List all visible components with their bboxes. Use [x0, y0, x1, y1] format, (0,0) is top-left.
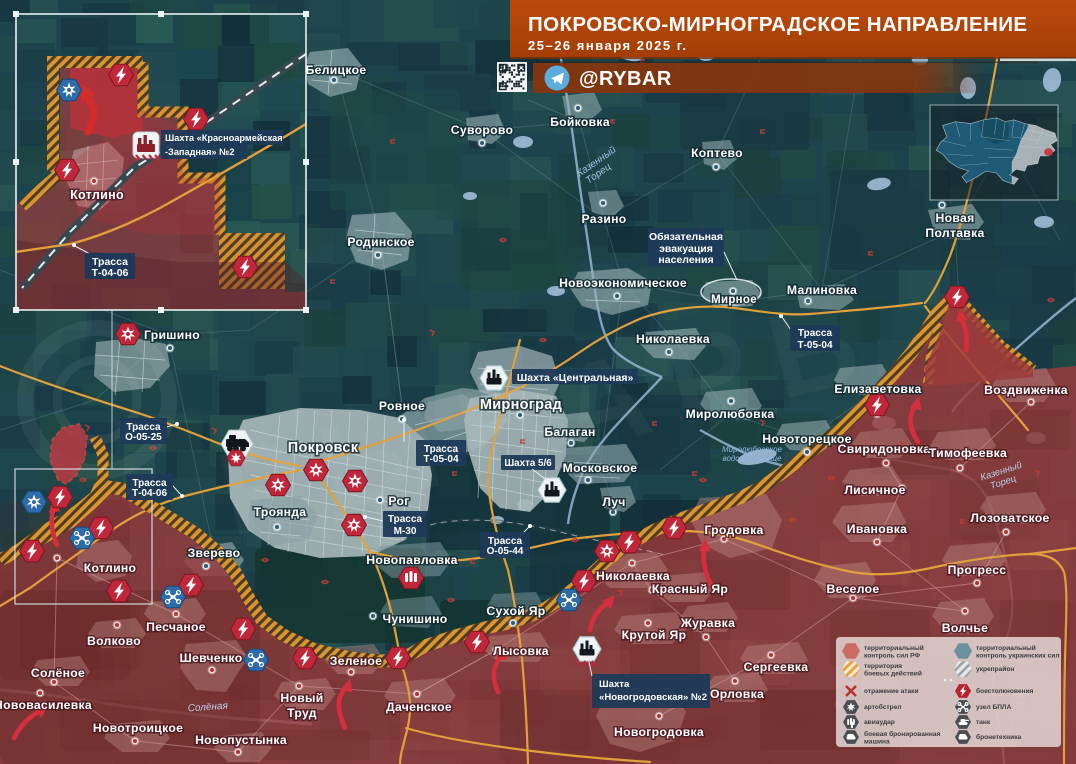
svg-text:боевых действий: боевых действий: [864, 670, 922, 678]
svg-text:М-30: М-30: [394, 526, 417, 537]
svg-text:Т-05-04: Т-05-04: [797, 340, 832, 351]
svg-text:Разино: Разино: [581, 212, 626, 226]
svg-text:Луч: Луч: [602, 495, 625, 509]
svg-text:Коптево: Коптево: [691, 146, 743, 160]
svg-text:бронетехника: бронетехника: [976, 733, 1022, 741]
svg-text:Шевченко: Шевченко: [179, 651, 242, 665]
svg-text:-Западная» №2: -Западная» №2: [165, 147, 234, 157]
svg-text:Рог: Рог: [388, 494, 409, 508]
svg-text:водохранилище: водохранилище: [722, 454, 782, 463]
svg-text:территория: территория: [864, 663, 902, 670]
svg-text:Волково: Волково: [87, 634, 141, 648]
svg-text:авиаудар: авиаудар: [864, 719, 895, 726]
svg-text:Новый: Новый: [280, 691, 323, 705]
svg-text:Солёное: Солёное: [31, 666, 85, 680]
svg-text:Ровное: Ровное: [379, 399, 425, 413]
svg-text:Нововасилевка: Нововасилевка: [0, 698, 92, 712]
svg-text:Котлино: Котлино: [70, 188, 124, 202]
svg-text:Орловка: Орловка: [710, 687, 764, 701]
svg-text:Новопавловка: Новопавловка: [366, 553, 458, 567]
svg-text:Труд: Труд: [287, 706, 317, 720]
svg-text:Чунишино: Чунишино: [382, 612, 447, 626]
svg-text:Тимофеевка: Тимофеевка: [929, 446, 1007, 460]
svg-text:Елизаветовка: Елизаветовка: [834, 382, 921, 396]
svg-text:Шахта «Центральная»: Шахта «Центральная»: [517, 372, 634, 384]
svg-text:Шахта 5/6: Шахта 5/6: [504, 458, 552, 469]
svg-text:Новопустынка: Новопустынка: [195, 733, 287, 747]
svg-text:Крутой Яр: Крутой Яр: [622, 628, 687, 642]
svg-text:узел БПЛА: узел БПЛА: [976, 704, 1012, 711]
svg-text:танк: танк: [976, 719, 991, 726]
svg-text:Шахта «Красноармейская: Шахта «Красноармейская: [165, 133, 283, 143]
svg-text:Новоэкономическое: Новоэкономическое: [559, 276, 687, 290]
svg-text:Т-04-06: Т-04-06: [132, 488, 167, 499]
svg-text:артобстрел: артобстрел: [864, 703, 902, 711]
svg-text:Покровск: Покровск: [288, 440, 359, 456]
svg-text:Малиновка: Малиновка: [787, 283, 857, 297]
svg-text:25–26 января 2025 г.: 25–26 января 2025 г.: [528, 38, 687, 53]
svg-text:Белицкое: Белицкое: [306, 63, 367, 77]
svg-text:Николаевка: Николаевка: [636, 332, 710, 346]
svg-text:Веселое: Веселое: [827, 582, 880, 596]
svg-text:Сухой Яр: Сухой Яр: [486, 604, 545, 618]
svg-text:Воздвиженка: Воздвиженка: [984, 383, 1068, 397]
svg-text:Гродовка: Гродовка: [704, 523, 763, 537]
svg-text:Балаган: Балаган: [544, 425, 595, 439]
svg-text:Новогродовка: Новогродовка: [614, 725, 704, 739]
svg-text:Журавка: Журавка: [680, 616, 735, 630]
svg-text:О-05-44: О-05-44: [487, 546, 524, 557]
svg-text:Т-04-06: Т-04-06: [92, 267, 129, 279]
svg-text:Миролюбовка: Миролюбовка: [686, 407, 775, 421]
svg-text:Ивановка: Ивановка: [847, 522, 907, 536]
svg-text:О-05-25: О-05-25: [125, 432, 162, 443]
svg-text:Свиридоновка: Свиридоновка: [838, 442, 931, 456]
svg-text:Трасса: Трасса: [388, 514, 423, 525]
svg-text:укрепрайон: укрепрайон: [976, 665, 1014, 673]
svg-text:Лысовка: Лысовка: [493, 644, 549, 658]
svg-text:территориальный: территориальный: [864, 644, 924, 652]
svg-text:контроль сил РФ: контроль сил РФ: [864, 653, 920, 660]
svg-text:Обязательная: Обязательная: [649, 231, 723, 243]
svg-text:контроль украинских сил: контроль украинских сил: [976, 653, 1060, 660]
svg-text:Т-05-04: Т-05-04: [423, 454, 458, 465]
svg-text:Новая: Новая: [936, 211, 975, 225]
svg-text:Зеленое: Зеленое: [330, 654, 382, 668]
svg-text:Гришино: Гришино: [144, 328, 200, 342]
svg-text:Красный Яр: Красный Яр: [652, 582, 728, 596]
svg-text:Полтавка: Полтавка: [925, 226, 984, 240]
svg-text:населения: населения: [658, 254, 713, 266]
svg-text:Лозоватское: Лозоватское: [970, 511, 1049, 525]
svg-text:Суворово: Суворово: [451, 123, 513, 137]
svg-text:отражение атаки: отражение атаки: [864, 688, 919, 695]
svg-text:Прогресс: Прогресс: [948, 563, 1007, 577]
svg-text:Бойковка: Бойковка: [550, 115, 610, 129]
svg-text:Даченское: Даченское: [386, 700, 452, 714]
svg-text:Мирное: Мирное: [711, 294, 757, 306]
svg-text:Николаевка: Николаевка: [596, 569, 670, 583]
svg-text:Новотроицкое: Новотроицкое: [93, 721, 183, 735]
svg-text:Московское: Московское: [563, 461, 638, 475]
svg-text:Мирноград: Мирноград: [480, 397, 562, 413]
svg-text:Котлино: Котлино: [84, 561, 137, 575]
svg-text:Трасса: Трасса: [798, 328, 833, 339]
svg-text:Песчаное: Песчаное: [146, 620, 206, 634]
svg-text:«Новогродовская» №2: «Новогродовская» №2: [599, 692, 707, 703]
svg-text:@RYBAR: @RYBAR: [579, 68, 672, 90]
svg-text:боестолкновения: боестолкновения: [976, 687, 1034, 695]
svg-text:Родинское: Родинское: [347, 235, 414, 249]
svg-text:машина: машина: [864, 739, 890, 746]
svg-text:Миролюбовское: Миролюбовское: [722, 445, 783, 454]
svg-text:Шахта: Шахта: [599, 679, 630, 690]
svg-text:Волчье: Волчье: [942, 621, 989, 635]
svg-text:Зверево: Зверево: [188, 546, 241, 560]
svg-text:ПОКРОВСКО-МИРНОГРАДСКОЕ НАПРАВ: ПОКРОВСКО-МИРНОГРАДСКОЕ НАПРАВЛЕНИЕ: [528, 13, 1028, 36]
svg-text:территориальный: территориальный: [976, 644, 1036, 652]
svg-text:Троянда: Троянда: [254, 505, 307, 519]
svg-text:Лисичное: Лисичное: [844, 483, 905, 497]
svg-text:боевая бронированная: боевая бронированная: [864, 730, 941, 738]
svg-text:Сергеевка: Сергеевка: [744, 660, 809, 674]
